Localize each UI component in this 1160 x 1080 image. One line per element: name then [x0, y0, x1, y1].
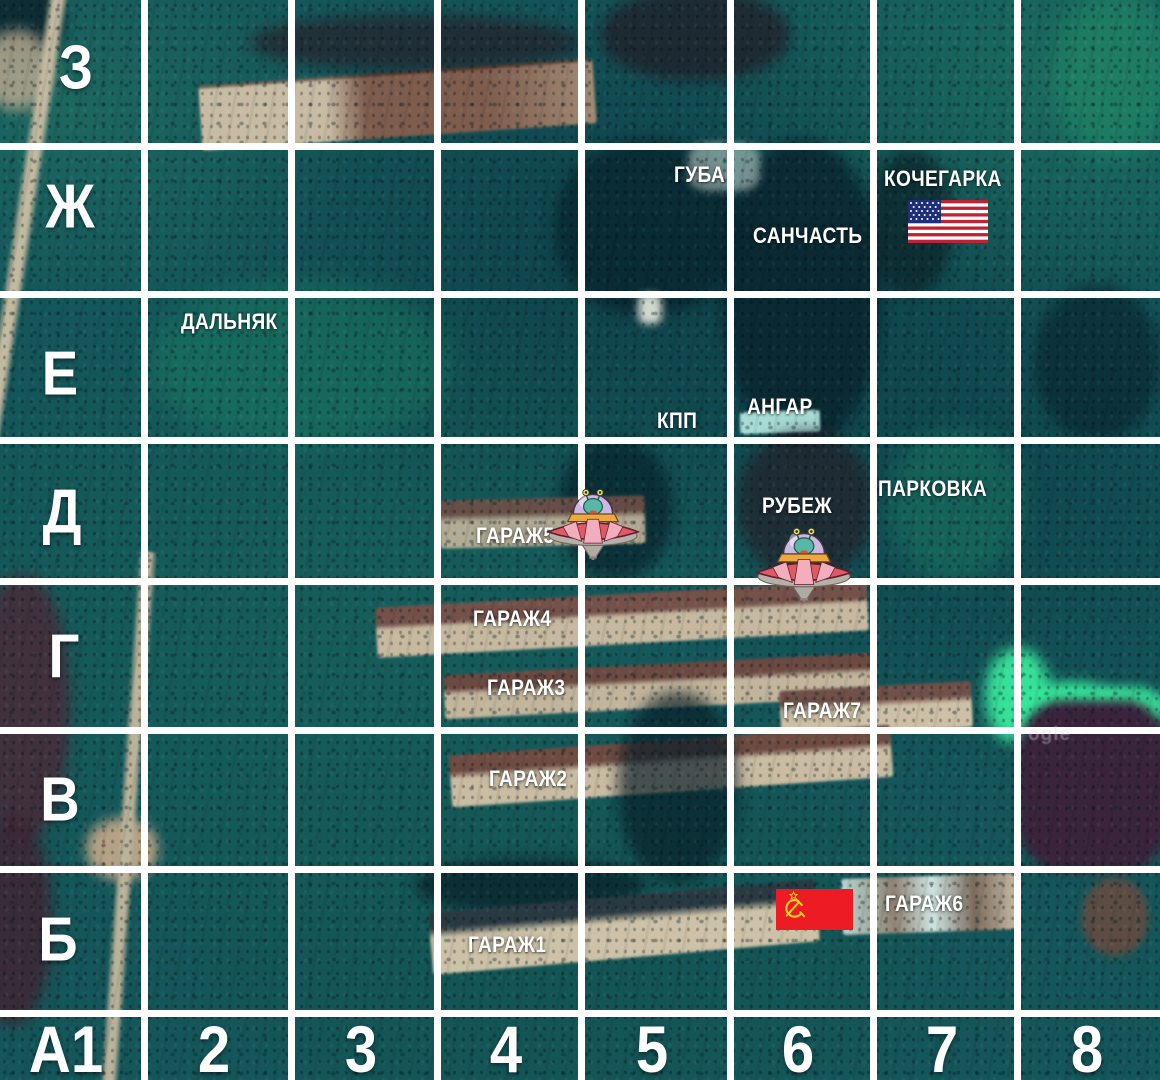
- grid-line: [0, 143, 1160, 150]
- location-label-garage2: ГАРАЖ2: [489, 766, 567, 792]
- col-label-3: 3: [345, 1011, 377, 1080]
- location-label-garage1: ГАРАЖ1: [468, 932, 546, 958]
- us-flag-icon: [908, 200, 988, 243]
- col-label-8: 8: [1071, 1011, 1103, 1080]
- soviet-flag-icon: [776, 889, 853, 930]
- grid-line: [0, 437, 1160, 444]
- location-label-parkovka: ПАРКОВКА: [878, 476, 987, 502]
- grid-line: [0, 866, 1160, 873]
- row-label-g: Г: [49, 622, 80, 693]
- location-label-garage4: ГАРАЖ4: [473, 606, 551, 632]
- location-label-kpp: КПП: [657, 408, 697, 434]
- location-label-sanchast: САНЧАСТЬ: [753, 223, 862, 249]
- grid-line: [0, 578, 1160, 585]
- col-label-4: 4: [490, 1011, 522, 1080]
- light-grass-patch: [1055, 0, 1160, 160]
- location-label-garage7: ГАРАЖ7: [783, 698, 861, 724]
- grid-line: [141, 0, 148, 1080]
- location-label-garage3: ГАРАЖ3: [487, 675, 565, 701]
- location-label-dalnyak: ДАЛЬНЯК: [181, 309, 278, 335]
- grid-line: [288, 0, 295, 1080]
- light-grass-patch: [888, 430, 1023, 580]
- kpp-building: [638, 294, 662, 324]
- col-label-7: 7: [926, 1011, 958, 1080]
- corner-label-a1: А1: [29, 1011, 103, 1080]
- grid-line: [0, 291, 1160, 298]
- col-label-2: 2: [198, 1011, 230, 1080]
- col-label-6: 6: [782, 1011, 814, 1080]
- tactical-grid-map: ogle З Ж Е Д Г В Б А1 2 3 4 5 6 7 8 ГУБА…: [0, 0, 1160, 1080]
- location-label-garage6: ГАРАЖ6: [885, 891, 963, 917]
- location-label-kochegarka: КОЧЕГАРКА: [884, 166, 1002, 192]
- light-grass-patch: [150, 280, 450, 445]
- imagery-watermark: ogle: [1028, 724, 1071, 746]
- row-label-d: Д: [43, 477, 82, 548]
- brown-structure: [1082, 878, 1148, 956]
- road-lower: [99, 551, 157, 1080]
- dark-forest-patch: [1035, 285, 1160, 440]
- building-long: [198, 58, 597, 150]
- row-label-z: З: [59, 33, 93, 104]
- col-label-5: 5: [636, 1011, 668, 1080]
- ufo-icon: [755, 508, 853, 602]
- location-label-guba: ГУБА: [674, 162, 725, 188]
- grid-line: [0, 1010, 1160, 1017]
- row-label-zh: Ж: [45, 172, 94, 243]
- row-label-b: Б: [38, 905, 77, 976]
- grid-line: [727, 0, 734, 1080]
- row-label-v: В: [40, 765, 79, 836]
- location-label-angar: АНГАР: [747, 394, 813, 420]
- dark-forest-patch: [618, 692, 738, 882]
- grid-line: [870, 0, 877, 1080]
- grid-line: [0, 727, 1160, 734]
- grid-line: [1014, 0, 1021, 1080]
- grid-line: [434, 0, 441, 1080]
- ufo-icon: [546, 470, 640, 560]
- row-label-e: Е: [42, 339, 78, 410]
- location-label-garage5: ГАРАЖ5: [476, 523, 554, 549]
- dark-forest-patch: [600, 0, 790, 80]
